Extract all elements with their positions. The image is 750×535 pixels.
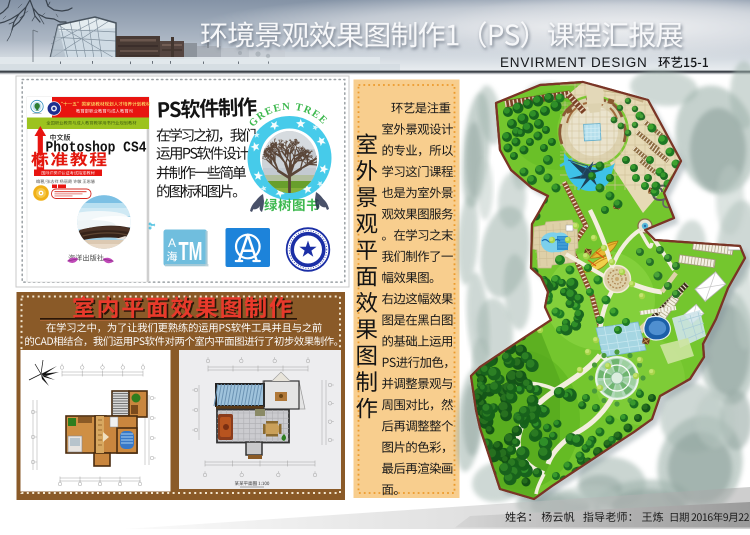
svg-text:A: A (168, 236, 176, 250)
svg-text:ENVIRMENT DESIGN: ENVIRMENT DESIGN (500, 55, 648, 70)
svg-text:Photoshop CS4: Photoshop CS4 (46, 140, 147, 157)
svg-text:TM: TM (179, 236, 203, 266)
